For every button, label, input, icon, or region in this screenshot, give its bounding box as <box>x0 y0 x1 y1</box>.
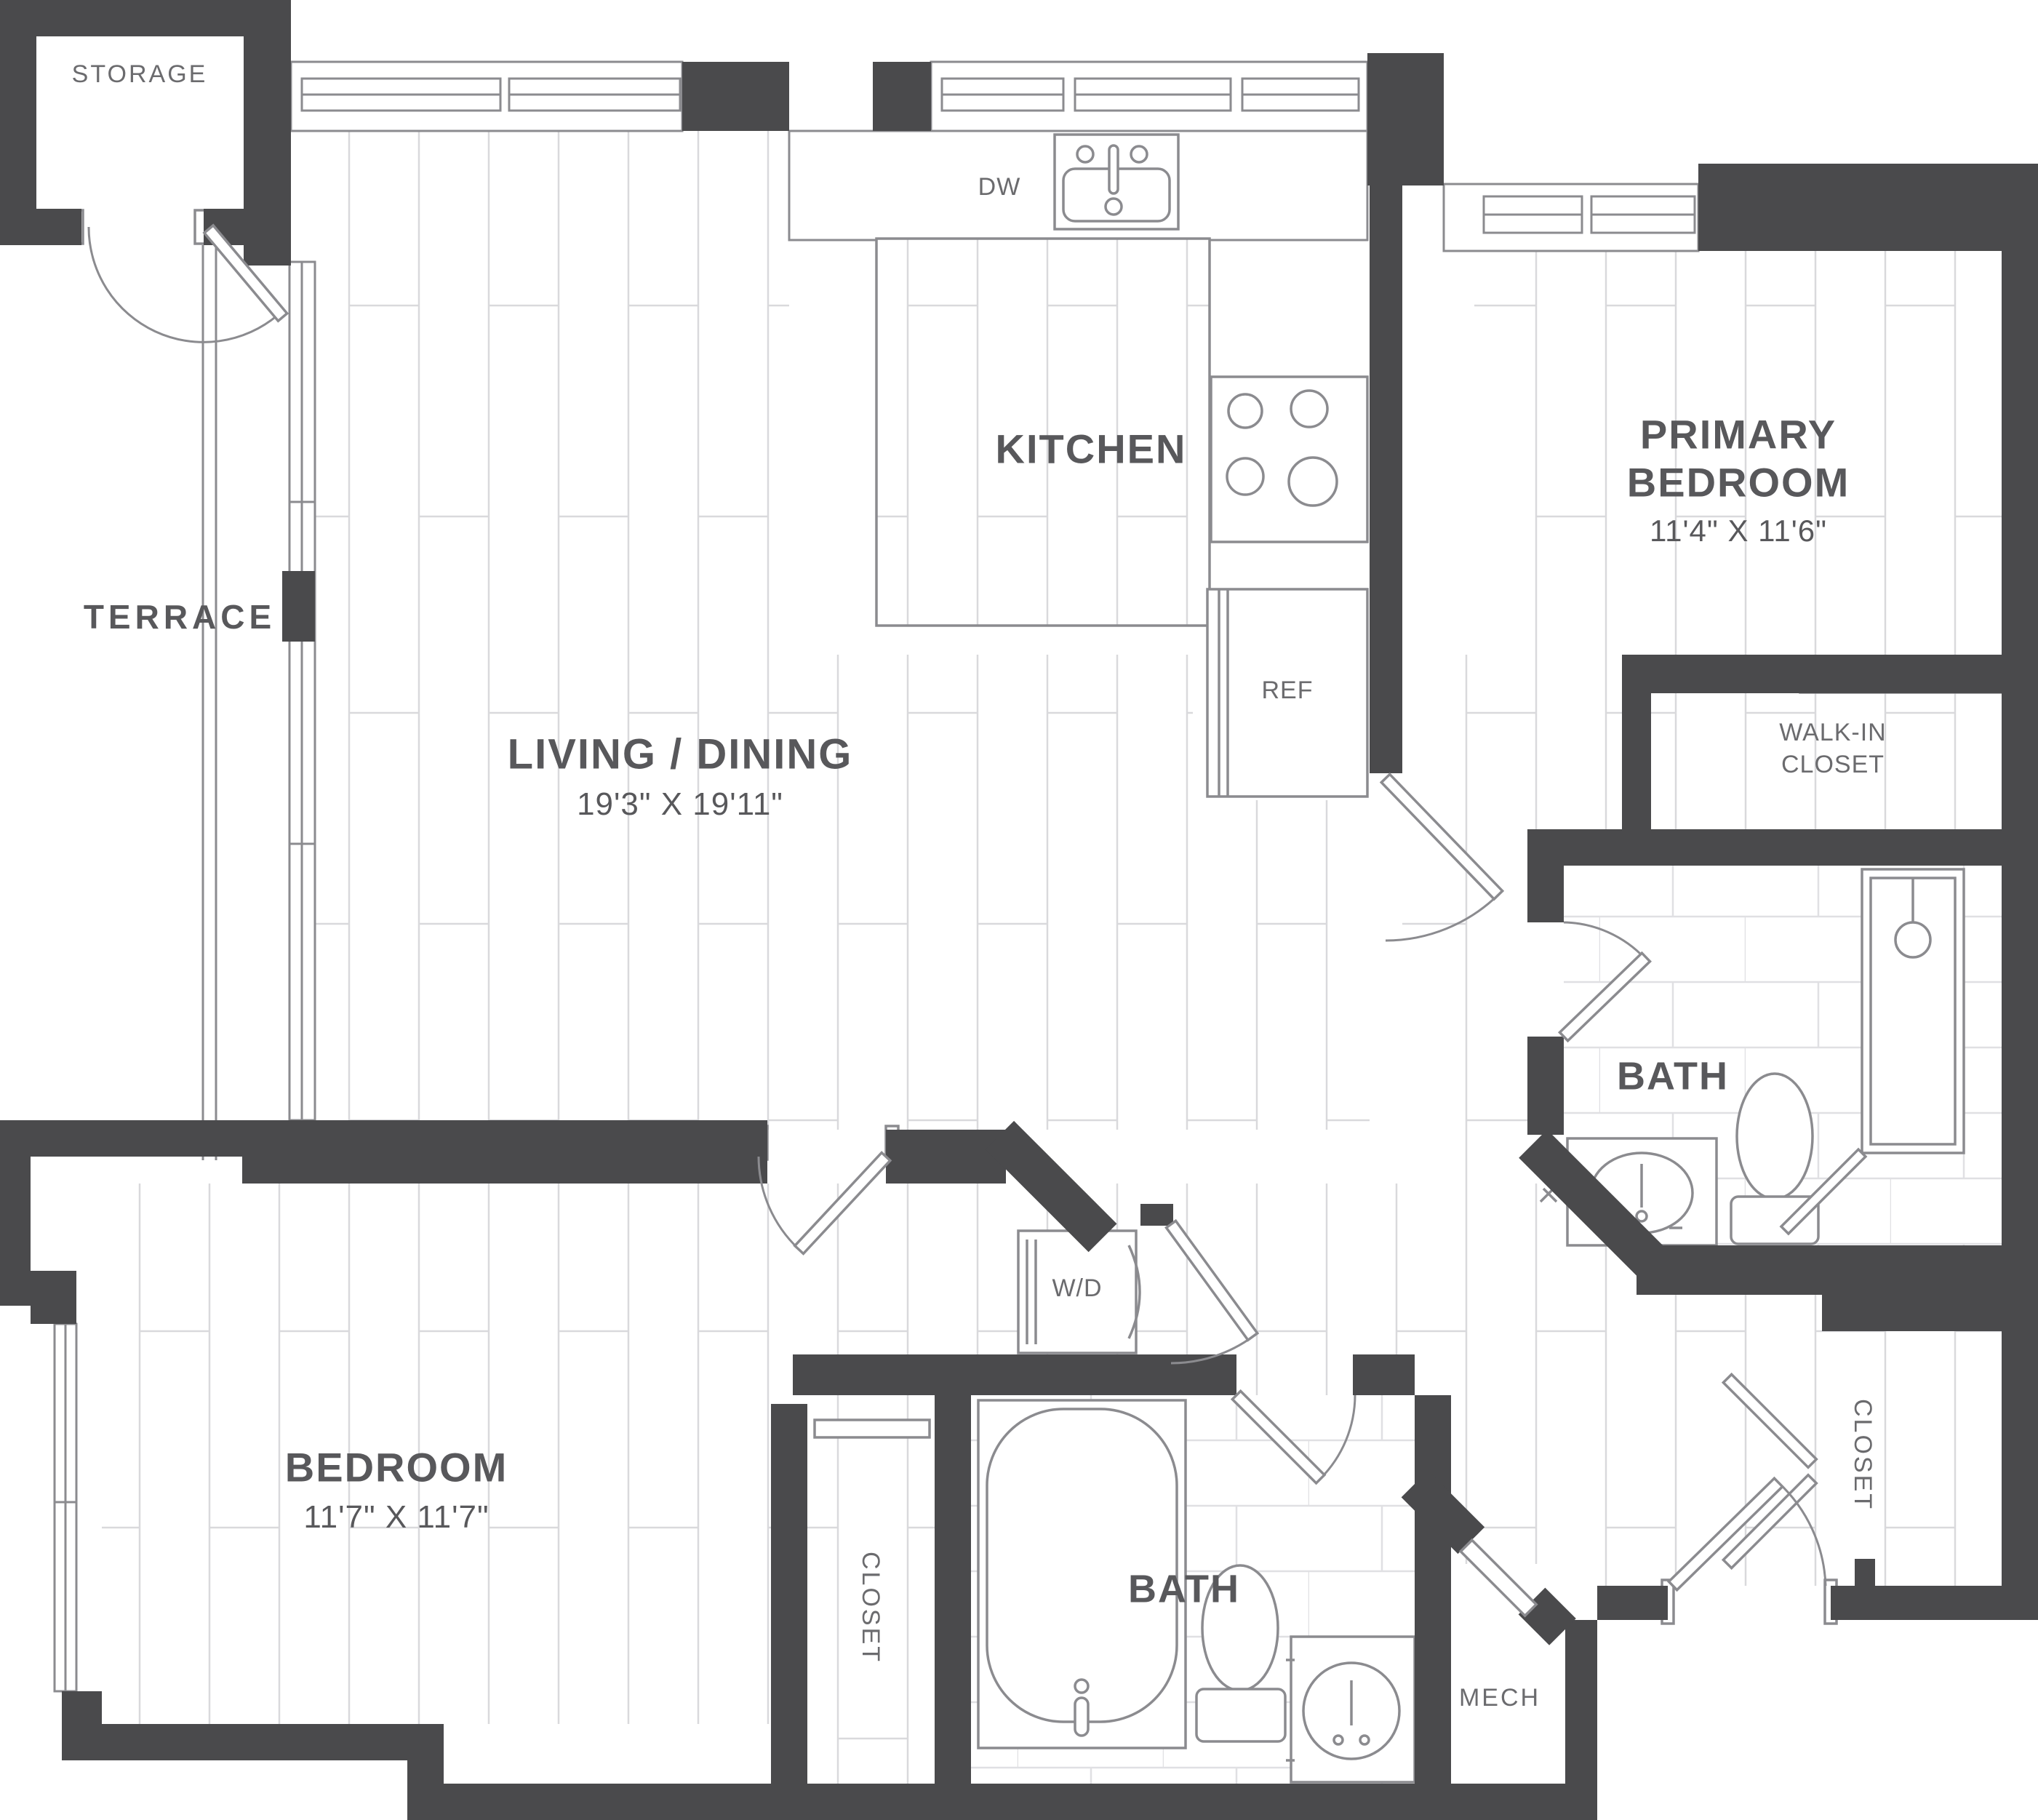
stove-icon <box>1211 377 1367 542</box>
bedroom-closet-door <box>815 1420 930 1437</box>
storage-label: STORAGE <box>72 62 208 88</box>
bedroom-closet-label: CLOSET <box>857 1552 883 1664</box>
walkin-closet-label-line1: WALK-IN <box>1779 720 1886 746</box>
dishwasher-label: DW <box>978 175 1021 201</box>
refrigerator-label: REF <box>1262 678 1314 704</box>
walkin-closet-label-line2: CLOSET <box>1781 752 1885 778</box>
terrace-railing <box>203 245 216 1160</box>
floor-plan: STORAGE TERRACE LIVING / DINING 19'3" X … <box>0 0 2038 1820</box>
hall-vanity-icon <box>1286 1637 1415 1782</box>
bedroom-dims: 11'7" X 11'7" <box>303 1501 489 1534</box>
living-dining-label: LIVING / DINING <box>508 733 853 778</box>
kitchen-label: KITCHEN <box>996 428 1187 471</box>
floor-plan-drawing <box>0 0 2038 1820</box>
kitchen-sink-icon <box>1055 135 1178 229</box>
entry-closet-label: CLOSET <box>1849 1399 1875 1511</box>
primary-bedroom-dims: 11'4" X 11'6" <box>1650 515 1827 547</box>
primary-bedroom-label-line1: PRIMARY <box>1640 414 1837 457</box>
door-jamb <box>195 210 205 244</box>
terrace-label: TERRACE <box>84 599 276 634</box>
hall-bath-label: BATH <box>1128 1569 1240 1611</box>
living-dining-dims: 19'3" X 19'11" <box>577 788 783 821</box>
washer-dryer-label: W/D <box>1052 1276 1102 1302</box>
bedroom-label: BEDROOM <box>285 1447 508 1490</box>
mech-label: MECH <box>1459 1685 1541 1712</box>
primary-bedroom-label-line2: BEDROOM <box>1627 462 1850 505</box>
shower-icon <box>1862 869 1964 1153</box>
primary-bath-label: BATH <box>1617 1056 1729 1098</box>
